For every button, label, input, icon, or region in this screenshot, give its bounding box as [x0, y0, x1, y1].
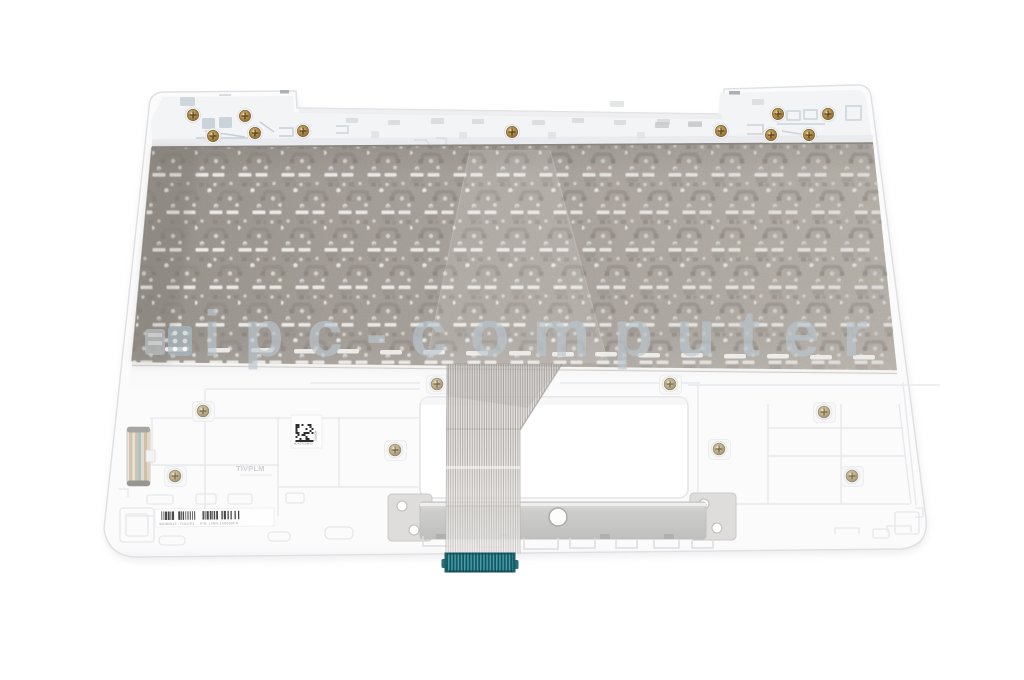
svg-text:ipc-computer: ipc-computer	[203, 297, 891, 370]
svg-text:4DXSTCAMV0: 4DXSTCAMV0	[294, 442, 313, 446]
svg-text:4DXSTC: 4DXSTC	[314, 431, 318, 441]
svg-text:90NB0943 - R31US3 P/N: 13N: 90NB0943 - R31US3 P/N: 13NN-2XK0S0CN	[159, 521, 239, 526]
svg-text:TЇVΡLM: TЇVΡLM	[236, 464, 265, 473]
